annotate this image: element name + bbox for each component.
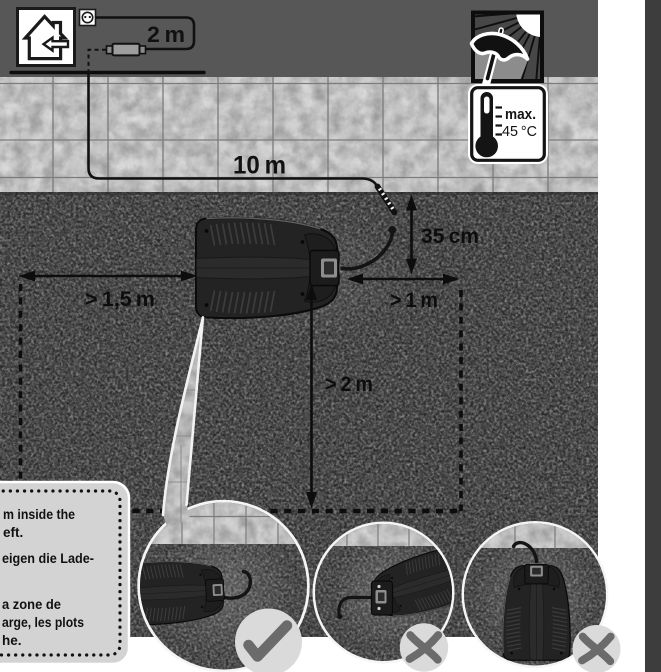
svg-text:> 1 m: > 1 m [390,289,438,312]
svg-text:eigen die Lade-: eigen die Lade- [2,551,94,566]
svg-text:max.: max. [505,106,536,123]
svg-text:a zone de: a zone de [2,597,61,612]
svg-text:> 1,5 m: > 1,5 m [85,288,155,311]
svg-text:arge, les plots: arge, les plots [2,615,84,630]
svg-text:> 2 m: > 2 m [325,373,373,396]
svg-text:10 m: 10 m [233,152,286,180]
svg-text:eft.: eft. [3,525,23,540]
svg-text:2 m: 2 m [147,22,185,47]
svg-text:m inside the: m inside the [3,507,75,522]
svg-text:45 °C: 45 °C [502,123,537,140]
svg-text:he.: he. [2,633,22,648]
svg-text:35 cm: 35 cm [421,225,479,248]
